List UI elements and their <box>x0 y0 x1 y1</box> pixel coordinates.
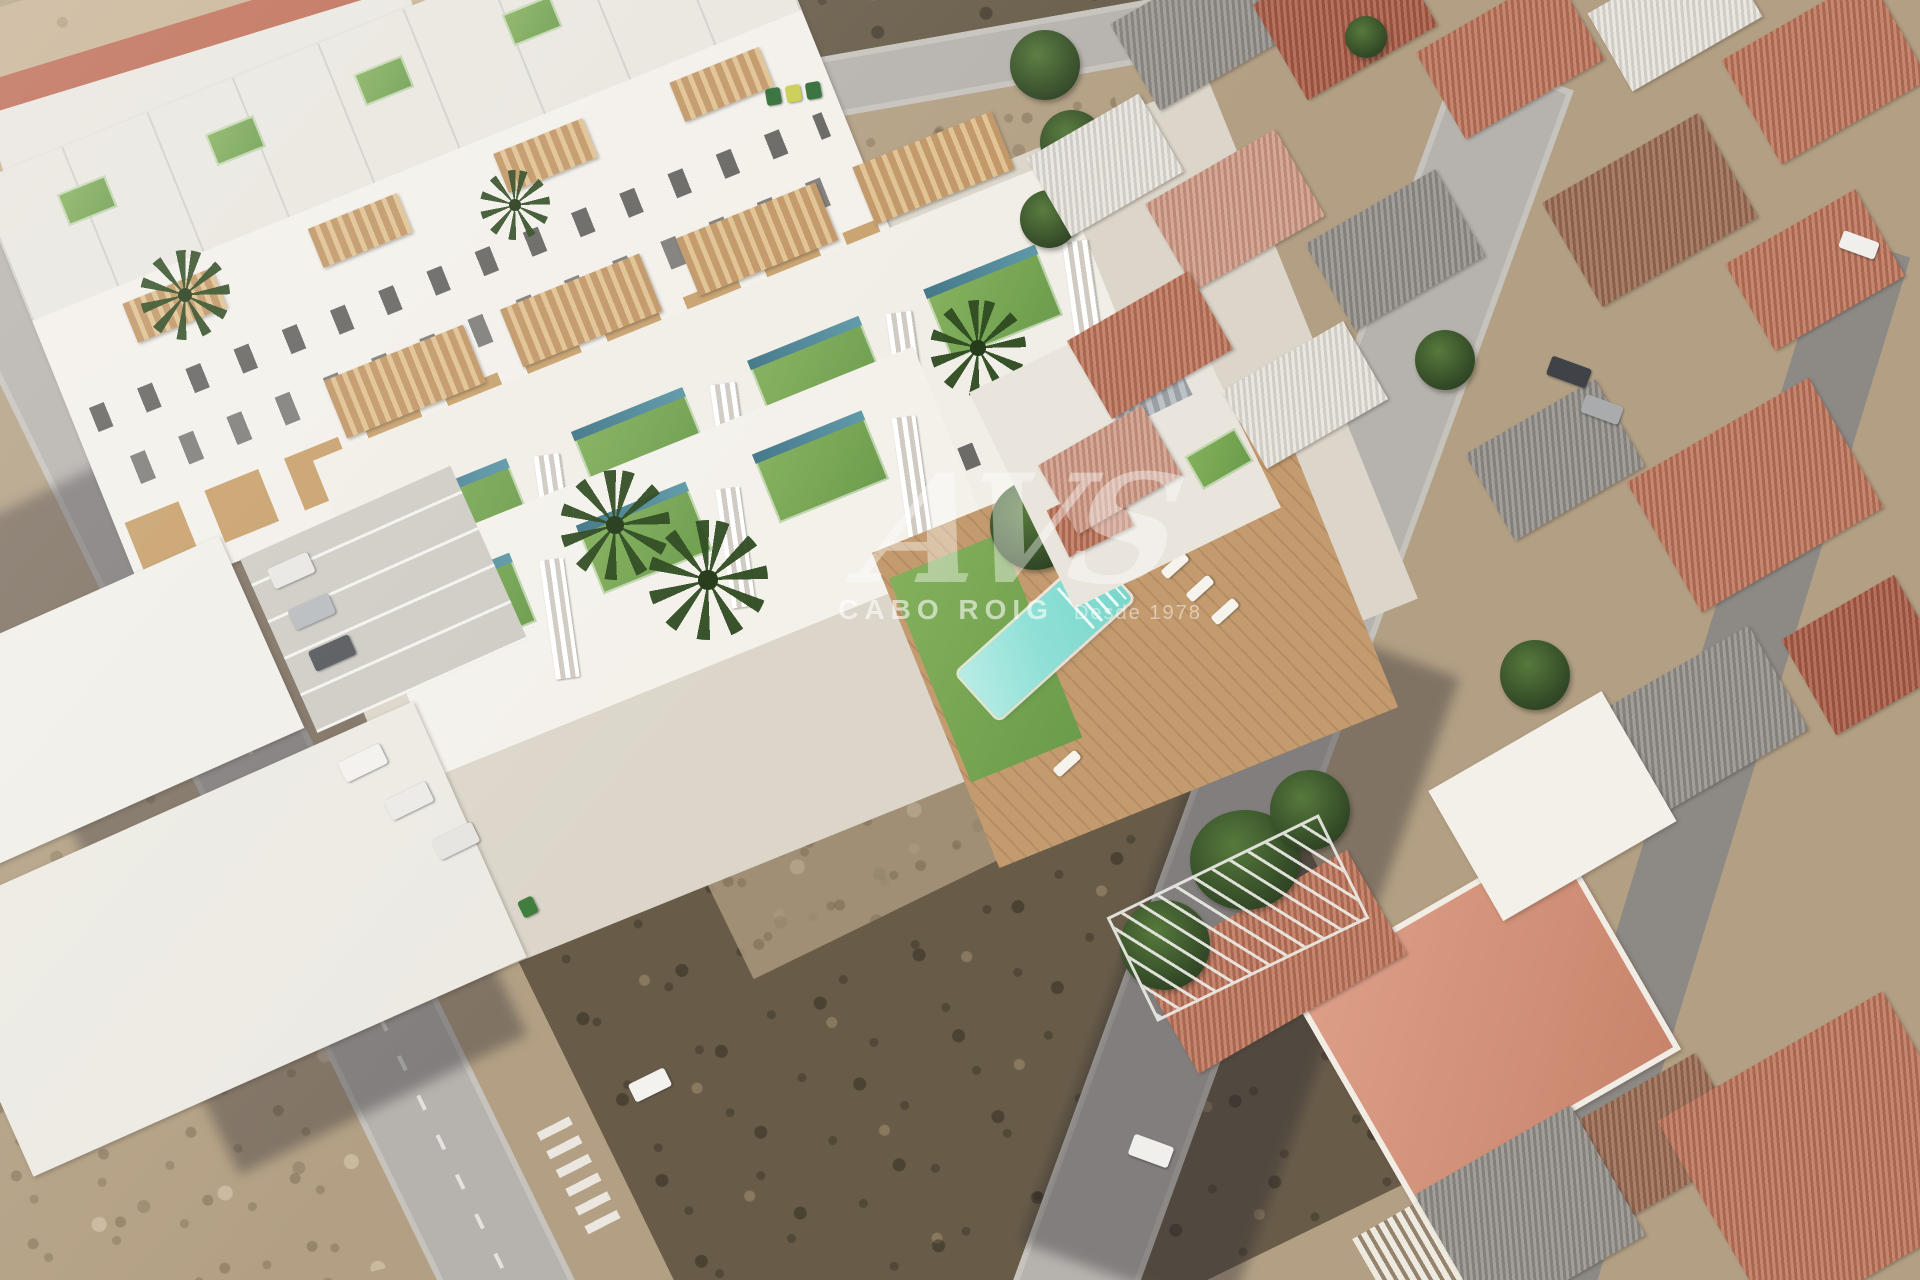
balcony-slats <box>308 193 413 268</box>
house-roof <box>1465 379 1645 541</box>
house-roof <box>1542 113 1758 307</box>
recycle-bin <box>805 81 823 100</box>
recycle-bin <box>765 87 783 106</box>
palm-tree <box>140 250 230 340</box>
house-roof <box>1721 0 1920 164</box>
hedge-tree <box>1010 30 1080 100</box>
dark-car <box>1546 355 1592 388</box>
house-roof <box>1253 0 1438 100</box>
aerial-render-scene: AVS CABO ROIG Desde 1978 <box>0 0 1920 1280</box>
street-tree <box>1415 330 1475 390</box>
recycle-bin <box>785 84 803 103</box>
balcony-slats <box>669 47 774 122</box>
street-tree <box>1500 640 1570 710</box>
street-tree <box>1345 16 1387 58</box>
palm-tree <box>648 520 768 640</box>
palm-tree <box>480 170 550 240</box>
